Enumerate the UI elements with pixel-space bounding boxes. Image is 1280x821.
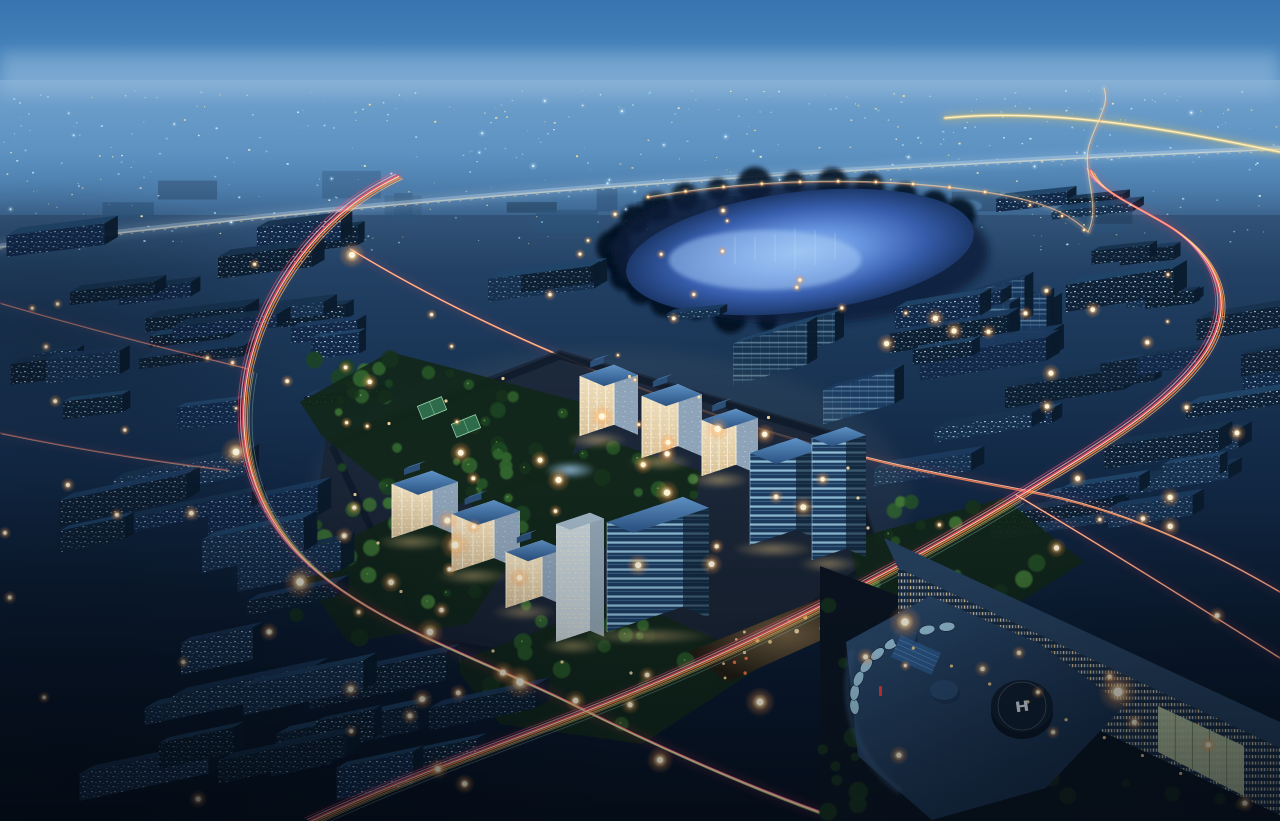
city-light-dot bbox=[1164, 93, 1166, 94]
city-light-dot bbox=[540, 142, 541, 143]
city-light-dot bbox=[455, 217, 457, 219]
city-light-dot bbox=[585, 95, 586, 96]
street-lamp bbox=[715, 426, 721, 432]
cool-light bbox=[331, 178, 332, 179]
city-light-dot bbox=[47, 96, 49, 98]
city-light-dot bbox=[138, 105, 139, 106]
tree bbox=[422, 366, 435, 379]
city-light-dot bbox=[1258, 205, 1259, 206]
city-light-dot bbox=[620, 163, 622, 164]
city-light-dot bbox=[1153, 191, 1154, 192]
city-light-dot bbox=[554, 122, 556, 124]
city-light-dot bbox=[1275, 126, 1277, 128]
city-light-dot bbox=[1029, 108, 1030, 109]
city-light-dot bbox=[547, 133, 548, 134]
city-light-dot bbox=[674, 113, 676, 114]
city-light-dot bbox=[408, 191, 410, 193]
city-light-dot bbox=[362, 109, 364, 110]
city-light-dot bbox=[1083, 129, 1084, 130]
city-light-dot bbox=[125, 95, 126, 96]
city-light-dot bbox=[678, 107, 680, 109]
city-light-dot bbox=[1061, 164, 1062, 165]
city-light-dot bbox=[582, 90, 583, 91]
city-light-dot bbox=[233, 162, 234, 163]
city-light-dot bbox=[1003, 137, 1005, 139]
city-light-dot bbox=[1177, 100, 1178, 101]
city-light-dot bbox=[597, 221, 598, 222]
city-light-dot bbox=[1066, 244, 1068, 246]
city-light-dot bbox=[716, 157, 717, 158]
city-light-dot bbox=[1015, 92, 1017, 93]
city-light-dot bbox=[640, 154, 642, 155]
street-lamp bbox=[721, 250, 724, 253]
city-light-dot bbox=[748, 126, 749, 127]
city-light-dot bbox=[352, 148, 353, 149]
city-light-dot bbox=[976, 99, 977, 100]
city-light-dot bbox=[1144, 233, 1145, 234]
city-light-dot bbox=[897, 126, 899, 127]
street-lamp bbox=[884, 341, 889, 346]
street-lamp bbox=[638, 423, 641, 426]
city-light-dot bbox=[1227, 109, 1229, 111]
city-light-dot bbox=[1167, 214, 1169, 215]
cool-light bbox=[479, 152, 480, 153]
street-lamp bbox=[430, 313, 433, 316]
city-light-dot bbox=[778, 91, 780, 92]
city-light-dot bbox=[760, 156, 762, 158]
city-light-dot bbox=[372, 238, 373, 239]
city-light-dot bbox=[101, 125, 103, 127]
city-light-dot bbox=[490, 122, 491, 123]
city-light-dot bbox=[726, 169, 727, 170]
city-light-dot bbox=[184, 119, 186, 121]
city-light-dot bbox=[259, 137, 261, 138]
street-lamp bbox=[795, 286, 798, 289]
cool-light bbox=[73, 135, 74, 136]
path-lamp bbox=[846, 466, 849, 469]
street-lamp bbox=[634, 379, 636, 381]
city-light-dot bbox=[1259, 195, 1261, 197]
city-light-dot bbox=[25, 150, 27, 152]
city-light-dot bbox=[1263, 231, 1264, 232]
cool-light bbox=[532, 165, 534, 167]
city-light-dot bbox=[301, 128, 302, 129]
city-light-dot bbox=[328, 199, 330, 200]
city-light-dot bbox=[307, 125, 308, 126]
city-light-dot bbox=[139, 187, 141, 189]
city-light-dot bbox=[238, 197, 240, 199]
city-light-dot bbox=[1180, 207, 1182, 208]
cool-light bbox=[174, 123, 175, 124]
city-light-dot bbox=[214, 176, 216, 177]
city-light-dot bbox=[1072, 114, 1073, 115]
street-lamp bbox=[458, 450, 464, 456]
tree bbox=[500, 466, 513, 479]
city-light-dot bbox=[287, 163, 289, 165]
city-light-dot bbox=[319, 179, 320, 180]
city-light-dot bbox=[964, 127, 966, 129]
tree bbox=[335, 408, 343, 416]
city-light-dot bbox=[61, 163, 63, 164]
city-light-dot bbox=[631, 167, 633, 169]
city-light-dot bbox=[1222, 124, 1223, 125]
city-light-dot bbox=[1230, 241, 1232, 242]
city-light-dot bbox=[769, 96, 770, 97]
city-light-dot bbox=[469, 171, 471, 173]
city-light-dot bbox=[297, 112, 299, 114]
street-lamp bbox=[1024, 311, 1028, 315]
city-light-dot bbox=[144, 97, 145, 98]
city-light-dot bbox=[311, 92, 312, 93]
city-light-dot bbox=[1250, 128, 1251, 129]
cool-light bbox=[68, 113, 69, 114]
city-light-dot bbox=[398, 242, 400, 243]
aerial-night-city-scene: H bbox=[0, 0, 1280, 821]
city-light-dot bbox=[1179, 96, 1180, 97]
city-light-dot bbox=[485, 148, 486, 149]
city-light-dot bbox=[323, 101, 324, 102]
city-light-dot bbox=[30, 130, 31, 131]
city-light-dot bbox=[917, 137, 919, 139]
city-light-dot bbox=[1016, 181, 1018, 182]
city-light-dot bbox=[1112, 103, 1114, 105]
city-light-dot bbox=[121, 155, 123, 156]
city-light-dot bbox=[855, 103, 856, 104]
city-light-dot bbox=[121, 162, 123, 163]
city-light-dot bbox=[131, 133, 132, 134]
cool-light bbox=[625, 209, 626, 210]
city-light-dot bbox=[974, 127, 975, 128]
city-light-dot bbox=[920, 142, 922, 143]
city-light-dot bbox=[333, 127, 335, 128]
street-lamp bbox=[798, 279, 801, 282]
city-light-dot bbox=[590, 169, 591, 170]
tree bbox=[490, 402, 506, 418]
city-light-dot bbox=[324, 125, 326, 126]
city-light-dot bbox=[536, 216, 537, 217]
city-light-dot bbox=[619, 106, 620, 107]
tree bbox=[496, 390, 509, 403]
street-lamp bbox=[617, 354, 619, 356]
tree bbox=[501, 452, 512, 463]
street-lamp bbox=[951, 328, 956, 333]
city-light-dot bbox=[522, 154, 523, 155]
street-lamp bbox=[1185, 406, 1189, 410]
city-light-dot bbox=[220, 94, 221, 95]
city-light-dot bbox=[705, 160, 706, 161]
city-light-dot bbox=[1040, 249, 1041, 250]
city-light-dot bbox=[369, 104, 371, 106]
city-light-dot bbox=[131, 167, 133, 168]
city-light-dot bbox=[888, 120, 890, 121]
city-light-dot bbox=[454, 109, 455, 110]
city-light-dot bbox=[79, 135, 80, 136]
city-light-dot bbox=[770, 112, 772, 113]
tree bbox=[392, 443, 402, 453]
cool-light bbox=[908, 156, 910, 158]
city-light-dot bbox=[896, 139, 897, 140]
street-lamp bbox=[1048, 371, 1053, 376]
city-light-dot bbox=[434, 183, 435, 184]
city-light-dot bbox=[1065, 110, 1067, 112]
city-light-dot bbox=[506, 116, 508, 117]
city-light-dot bbox=[1068, 107, 1069, 108]
path-lamp bbox=[628, 375, 631, 378]
city-light-dot bbox=[1217, 126, 1219, 127]
path-lamp bbox=[444, 399, 447, 402]
street-lamp bbox=[456, 421, 458, 423]
city-light-dot bbox=[649, 92, 651, 94]
city-light-dot bbox=[929, 96, 931, 97]
city-light-dot bbox=[159, 153, 161, 155]
city-light-dot bbox=[466, 191, 468, 192]
city-light-dot bbox=[1201, 113, 1202, 114]
street-lamp bbox=[1235, 431, 1240, 436]
city-light-dot bbox=[808, 103, 810, 104]
city-light-dot bbox=[1227, 111, 1228, 112]
city-light-dot bbox=[265, 151, 267, 153]
city-light-dot bbox=[259, 196, 260, 197]
city-light-dot bbox=[226, 157, 228, 159]
city-light-dot bbox=[519, 237, 521, 238]
city-light-dot bbox=[32, 172, 34, 174]
city-light-dot bbox=[505, 148, 507, 149]
city-light-dot bbox=[449, 107, 450, 108]
street-lamp bbox=[1045, 289, 1048, 292]
city-light-dot bbox=[501, 104, 503, 105]
city-light-dot bbox=[484, 112, 486, 113]
city-light-dot bbox=[1065, 223, 1066, 224]
city-light-dot bbox=[746, 99, 747, 100]
city-light-dot bbox=[1116, 234, 1118, 235]
city-light-dot bbox=[354, 111, 356, 113]
city-light-dot bbox=[336, 197, 338, 198]
street-lamp bbox=[450, 345, 452, 347]
city-light-dot bbox=[1200, 111, 1201, 112]
city-light-dot bbox=[387, 114, 388, 115]
path-lamp bbox=[767, 416, 770, 419]
city-light-dot bbox=[940, 143, 942, 144]
city-light-dot bbox=[415, 136, 417, 137]
rendering-canvas: H bbox=[0, 0, 1280, 821]
cool-light bbox=[725, 136, 727, 138]
city-light-dot bbox=[73, 126, 74, 127]
city-light-dot bbox=[415, 92, 417, 93]
street-lamp bbox=[366, 425, 369, 428]
city-light-dot bbox=[402, 237, 403, 238]
city-light-dot bbox=[864, 117, 866, 118]
cool-light bbox=[1190, 112, 1192, 114]
city-light-dot bbox=[553, 129, 555, 130]
lake-glow bbox=[669, 230, 862, 290]
city-light-dot bbox=[476, 161, 477, 162]
city-light-dot bbox=[1223, 113, 1224, 114]
tree bbox=[558, 408, 568, 418]
city-light-dot bbox=[981, 227, 982, 228]
city-light-dot bbox=[143, 122, 144, 123]
city-light-dot bbox=[600, 94, 601, 95]
city-light-dot bbox=[695, 100, 696, 101]
city-light-dot bbox=[568, 116, 570, 117]
street-lamp bbox=[986, 330, 990, 334]
city-light-dot bbox=[688, 109, 689, 110]
city-light-dot bbox=[824, 95, 825, 96]
street-lamp bbox=[614, 213, 617, 216]
street-lamp bbox=[660, 253, 663, 256]
city-light-dot bbox=[587, 162, 589, 164]
city-light-dot bbox=[1092, 100, 1093, 101]
city-light-dot bbox=[877, 110, 879, 112]
city-light-dot bbox=[846, 97, 847, 98]
city-light-dot bbox=[989, 145, 990, 146]
tree bbox=[385, 380, 393, 388]
city-light-dot bbox=[648, 140, 650, 141]
street-lamp bbox=[1045, 404, 1049, 408]
city-light-dot bbox=[953, 132, 954, 133]
cool-light bbox=[607, 183, 609, 185]
city-light-dot bbox=[1065, 90, 1067, 92]
city-light-dot bbox=[1257, 163, 1259, 164]
city-light-dot bbox=[1032, 214, 1033, 215]
street-lamp bbox=[672, 317, 675, 320]
city-light-dot bbox=[512, 100, 513, 101]
cool-light bbox=[621, 110, 623, 112]
city-light-dot bbox=[547, 236, 548, 237]
city-light-dot bbox=[545, 180, 546, 181]
city-light-dot bbox=[903, 95, 905, 97]
city-light-dot bbox=[156, 97, 158, 98]
city-light-dot bbox=[679, 158, 680, 159]
city-light-dot bbox=[14, 139, 15, 140]
street-lamp bbox=[664, 451, 669, 456]
city-light-dot bbox=[830, 108, 832, 110]
city-light-dot bbox=[718, 109, 719, 110]
city-light-dot bbox=[849, 147, 851, 148]
city-light-dot bbox=[386, 120, 387, 121]
city-light-dot bbox=[110, 147, 111, 148]
city-light-dot bbox=[1251, 110, 1253, 111]
city-light-dot bbox=[355, 120, 356, 121]
city-light-dot bbox=[1198, 156, 1200, 157]
city-light-dot bbox=[361, 165, 362, 166]
street-lamp bbox=[641, 462, 646, 467]
cool-light bbox=[391, 173, 392, 174]
path-lamp bbox=[387, 422, 390, 425]
city-light-dot bbox=[1193, 162, 1194, 163]
city-light-dot bbox=[358, 179, 359, 180]
city-light-dot bbox=[1216, 199, 1218, 200]
city-light-dot bbox=[302, 110, 303, 111]
path-lamp bbox=[501, 377, 504, 380]
cool-light bbox=[663, 144, 665, 146]
city-light-dot bbox=[478, 240, 479, 241]
city-light-dot bbox=[541, 221, 543, 222]
city-light-dot bbox=[3, 142, 4, 143]
city-light-dot bbox=[1182, 198, 1184, 200]
street-lamp bbox=[548, 293, 551, 296]
city-light-dot bbox=[632, 104, 634, 105]
cool-light bbox=[1084, 152, 1086, 154]
city-light-dot bbox=[216, 128, 218, 130]
street-lamp bbox=[1167, 321, 1169, 323]
city-light-dot bbox=[430, 209, 431, 210]
street-lamp bbox=[1090, 307, 1095, 312]
cool-light bbox=[1034, 166, 1036, 168]
tree bbox=[464, 379, 475, 390]
city-light-dot bbox=[1033, 235, 1034, 236]
city-light-dot bbox=[134, 90, 136, 91]
city-light-dot bbox=[383, 102, 384, 103]
city-light-dot bbox=[252, 114, 254, 115]
city-light-dot bbox=[469, 151, 470, 152]
city-light-dot bbox=[16, 160, 18, 162]
city-light-dot bbox=[21, 126, 22, 127]
street-lamp bbox=[368, 380, 372, 384]
city-light-dot bbox=[692, 90, 693, 91]
city-light-dot bbox=[7, 173, 9, 174]
city-light-dot bbox=[1078, 244, 1079, 245]
street-lamp bbox=[471, 476, 475, 480]
cool-light bbox=[582, 105, 583, 106]
city-light-dot bbox=[942, 131, 944, 133]
city-light-dot bbox=[901, 101, 903, 103]
city-light-dot bbox=[367, 235, 369, 236]
street-lamp bbox=[721, 209, 724, 212]
city-light-dot bbox=[754, 130, 756, 131]
city-light-dot bbox=[902, 144, 904, 145]
city-light-dot bbox=[1015, 106, 1016, 107]
city-light-dot bbox=[973, 151, 974, 152]
city-light-dot bbox=[100, 179, 101, 180]
city-light-dot bbox=[10, 152, 12, 153]
city-light-dot bbox=[406, 99, 407, 100]
city-light-dot bbox=[1249, 169, 1251, 171]
city-light-dot bbox=[364, 165, 366, 167]
city-light-dot bbox=[568, 196, 570, 198]
city-light-dot bbox=[1247, 229, 1248, 230]
city-light-dot bbox=[1040, 217, 1041, 218]
cool-light bbox=[481, 132, 483, 134]
city-light-dot bbox=[1004, 98, 1005, 99]
city-light-dot bbox=[850, 119, 852, 121]
city-light-dot bbox=[198, 135, 200, 136]
cool-light bbox=[753, 150, 754, 151]
street-lamp bbox=[599, 413, 605, 419]
tree bbox=[348, 387, 360, 399]
city-light-dot bbox=[1029, 138, 1031, 140]
city-light-dot bbox=[1109, 134, 1111, 135]
city-light-dot bbox=[204, 106, 205, 107]
cool-light bbox=[634, 191, 636, 193]
city-light-dot bbox=[491, 187, 492, 188]
city-light-dot bbox=[890, 179, 892, 180]
city-light-dot bbox=[1241, 91, 1243, 93]
city-light-dot bbox=[166, 138, 168, 140]
city-light-dot bbox=[777, 150, 778, 151]
city-light-dot bbox=[463, 155, 465, 156]
city-light-dot bbox=[1088, 91, 1089, 92]
city-light-dot bbox=[1046, 121, 1048, 122]
city-light-dot bbox=[1019, 103, 1020, 104]
street-lamp bbox=[933, 316, 938, 321]
city-light-dot bbox=[687, 140, 689, 142]
city-light-dot bbox=[118, 173, 120, 174]
city-light-dot bbox=[495, 107, 496, 108]
city-light-dot bbox=[246, 95, 247, 96]
city-light-dot bbox=[971, 111, 972, 112]
city-light-dot bbox=[1096, 145, 1097, 146]
city-light-dot bbox=[1071, 127, 1073, 129]
